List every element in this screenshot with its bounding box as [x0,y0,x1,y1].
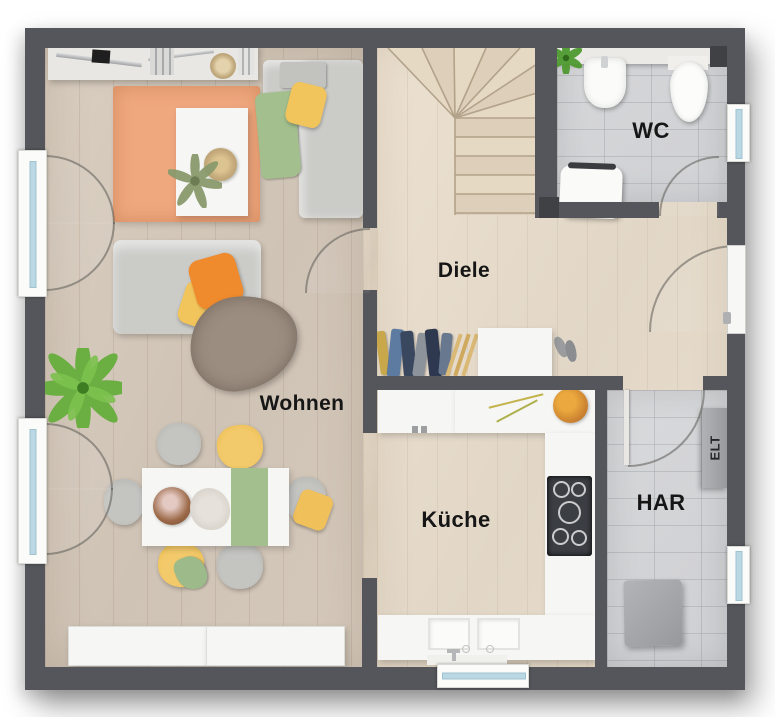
wall-wc-left [535,48,557,218]
decor-box-icon [92,49,111,63]
room-label-har: HAR [637,490,686,516]
har-door-leaf [624,390,629,465]
room-label-wc: WC [632,118,669,144]
window-glass [442,673,527,680]
room-label-kueche: Küche [421,507,490,533]
palm-plant-icon [44,348,122,428]
cabinet-handle-icon [412,426,418,433]
window-kitchen [437,664,529,688]
wall-shelf [48,44,258,80]
cooktop-burner-icon [552,528,569,545]
wall-living-kitchen [362,578,377,667]
wall-har-top-right [703,376,733,390]
cooktop [547,476,592,556]
window-glass [735,109,742,159]
cooktop-burner-icon [558,501,581,524]
dining-chair [157,423,201,465]
floor-plan: ELT Wohnen Diele WC Küche HAR [0,0,775,717]
elt-cabinet: ELT [702,408,728,488]
wall-kitchen-har [595,378,607,667]
wc-duct-pillar [710,46,727,67]
wall-living-wardrobe [363,290,377,433]
window-glass [29,429,36,555]
window-glass [735,551,742,601]
wall-living-stairs [363,48,377,228]
cooktop-burner-icon [553,481,570,498]
french-window-lower [18,418,47,564]
decor-books-icon [150,48,174,75]
wall-outer-left [25,28,45,690]
decor-books-icon [238,48,254,75]
shoe-cabinet [478,328,552,376]
centerpiece-bowl-icon [153,487,191,525]
kitchen-faucet-icon [452,651,456,661]
room-label-wohnen: Wohnen [260,392,345,416]
winder-stairs-icon [380,48,540,215]
wall-wc-bottom-right [717,202,732,218]
window-glass [29,161,36,288]
sink-drain-icon [462,645,470,653]
kitchen-sink-basin [477,618,520,650]
cooktop-burner-icon [571,530,587,546]
sink-drain-icon [486,645,494,653]
coral-decor-icon [190,488,230,530]
wc-faucet-icon [601,56,608,68]
table-runner [231,468,268,546]
window-har [727,546,750,604]
french-window-upper [18,150,47,297]
entrance-door-handle-icon [723,312,731,324]
tv-lowboard [206,626,345,666]
wall-hall-kitchen [363,376,623,390]
wall-outer-top [25,28,745,48]
washer [623,579,682,646]
cooktop-burner-icon [571,482,586,497]
window-wc [727,104,750,162]
wall-outer-bottom [25,667,745,690]
table-plant-icon [168,154,222,208]
room-label-diele: Diele [438,259,490,283]
decor-tray-icon [210,53,236,79]
wc-duct-pillar [539,197,559,218]
room-label-elt: ELT [708,435,723,460]
cabinet-handle-icon [421,426,427,433]
fruit-bowl-icon [553,388,588,423]
tv-lowboard [68,626,207,666]
